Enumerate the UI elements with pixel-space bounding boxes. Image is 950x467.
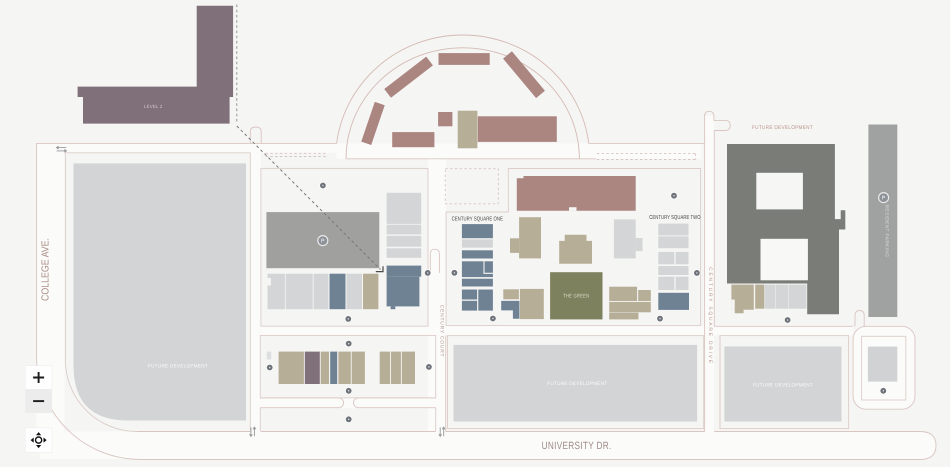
svg-text:CENTURY COURT: CENTURY COURT [439,305,445,358]
svg-text:COLLEGE AVE.: COLLEGE AVE. [41,238,52,301]
svg-text:FUTURE DEVELOPMENT: FUTURE DEVELOPMENT [753,382,813,388]
svg-text:FUTURE DEVELOPMENT: FUTURE DEVELOPMENT [752,125,813,131]
svg-text:FUTURE DEVELOPMENT: FUTURE DEVELOPMENT [148,363,208,369]
svg-text:P: P [321,239,325,245]
svg-text:FUTURE DEVELOPMENT: FUTURE DEVELOPMENT [547,381,607,387]
svg-text:P: P [882,196,886,202]
svg-text:CENTURY SQUARE ONE: CENTURY SQUARE ONE [452,216,503,222]
svg-text:THE GREEN: THE GREEN [563,294,589,300]
svg-text:LEVEL 2: LEVEL 2 [144,104,163,109]
svg-text:CENTURY SQUARE TWO: CENTURY SQUARE TWO [649,215,701,221]
svg-text:RESIDENT PARKING: RESIDENT PARKING [885,205,890,258]
svg-text:CENTURY SQUARE DRIVE: CENTURY SQUARE DRIVE [707,267,713,365]
svg-text:UNIVERSITY DR.: UNIVERSITY DR. [542,440,612,452]
